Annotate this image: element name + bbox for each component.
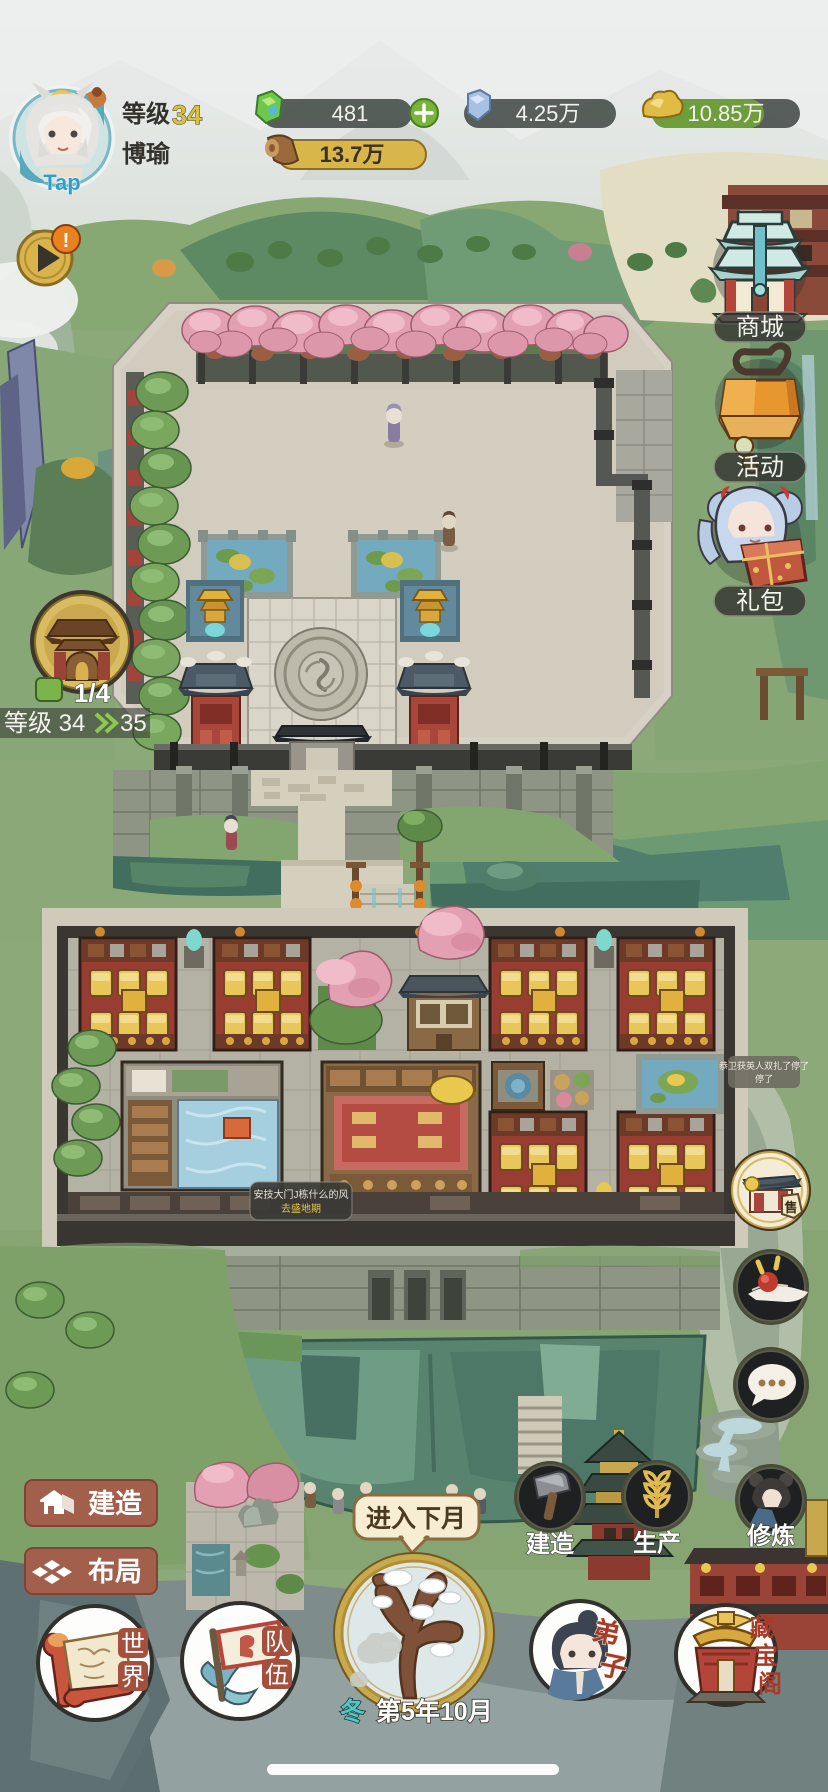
- svg-text:队: 队: [265, 1629, 289, 1656]
- svg-text:建造: 建造: [88, 1489, 142, 1519]
- svg-text:冬: 冬: [340, 1697, 365, 1726]
- svg-text:安技大门J栋什么的风: 安技大门J栋什么的风: [254, 1188, 349, 1201]
- svg-text:等级 34: 等级 34: [4, 710, 85, 737]
- svg-text:第5年10月: 第5年10月: [376, 1697, 493, 1726]
- svg-text:阁: 阁: [758, 1670, 782, 1698]
- svg-text:宝: 宝: [754, 1642, 778, 1670]
- svg-text:界: 界: [121, 1664, 145, 1691]
- svg-text:修炼: 修炼: [746, 1522, 795, 1550]
- svg-text:35: 35: [120, 710, 147, 737]
- svg-text:商城: 商城: [736, 314, 784, 341]
- svg-text:藏: 藏: [750, 1615, 774, 1642]
- svg-text:1/4: 1/4: [74, 678, 111, 708]
- svg-text:13.7万: 13.7万: [320, 142, 385, 167]
- svg-text:恭卫获英人双扎了停了: 恭卫获英人双扎了停了: [719, 1060, 809, 1071]
- svg-text:Tap: Tap: [43, 170, 80, 195]
- svg-text:停了: 停了: [755, 1073, 773, 1084]
- svg-text:礼包: 礼包: [736, 588, 784, 615]
- svg-text:建造: 建造: [526, 1531, 574, 1558]
- svg-text:活动: 活动: [736, 454, 784, 481]
- svg-text:481: 481: [332, 101, 369, 126]
- svg-text:售: 售: [784, 1200, 797, 1215]
- svg-text:博瑜: 博瑜: [122, 140, 171, 168]
- svg-text:进入下月: 进入下月: [366, 1505, 466, 1533]
- svg-text:世: 世: [121, 1631, 145, 1658]
- svg-text:伍: 伍: [265, 1662, 289, 1689]
- svg-text:4.25万: 4.25万: [516, 101, 581, 126]
- svg-text:布局: 布局: [88, 1557, 142, 1587]
- svg-text:!: !: [63, 230, 70, 252]
- svg-text:10.85万: 10.85万: [687, 101, 764, 126]
- svg-text:34: 34: [172, 100, 202, 130]
- svg-text:等级: 等级: [122, 100, 170, 128]
- svg-text:去盛地期: 去盛地期: [281, 1202, 321, 1215]
- svg-text:生产: 生产: [633, 1529, 681, 1557]
